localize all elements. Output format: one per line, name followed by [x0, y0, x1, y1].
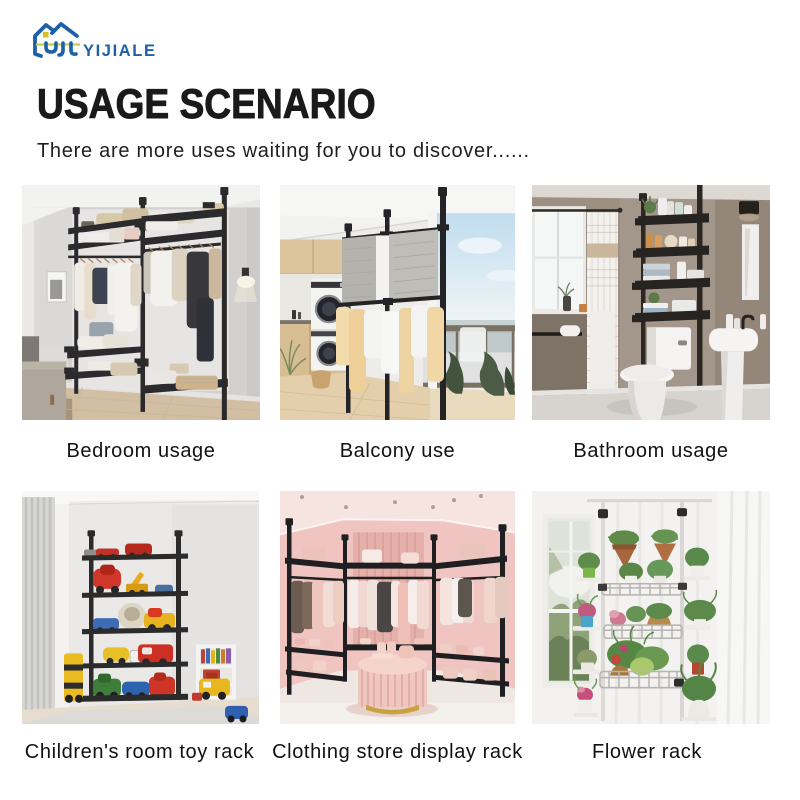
svg-text:YIJIALE: YIJIALE	[83, 42, 157, 59]
